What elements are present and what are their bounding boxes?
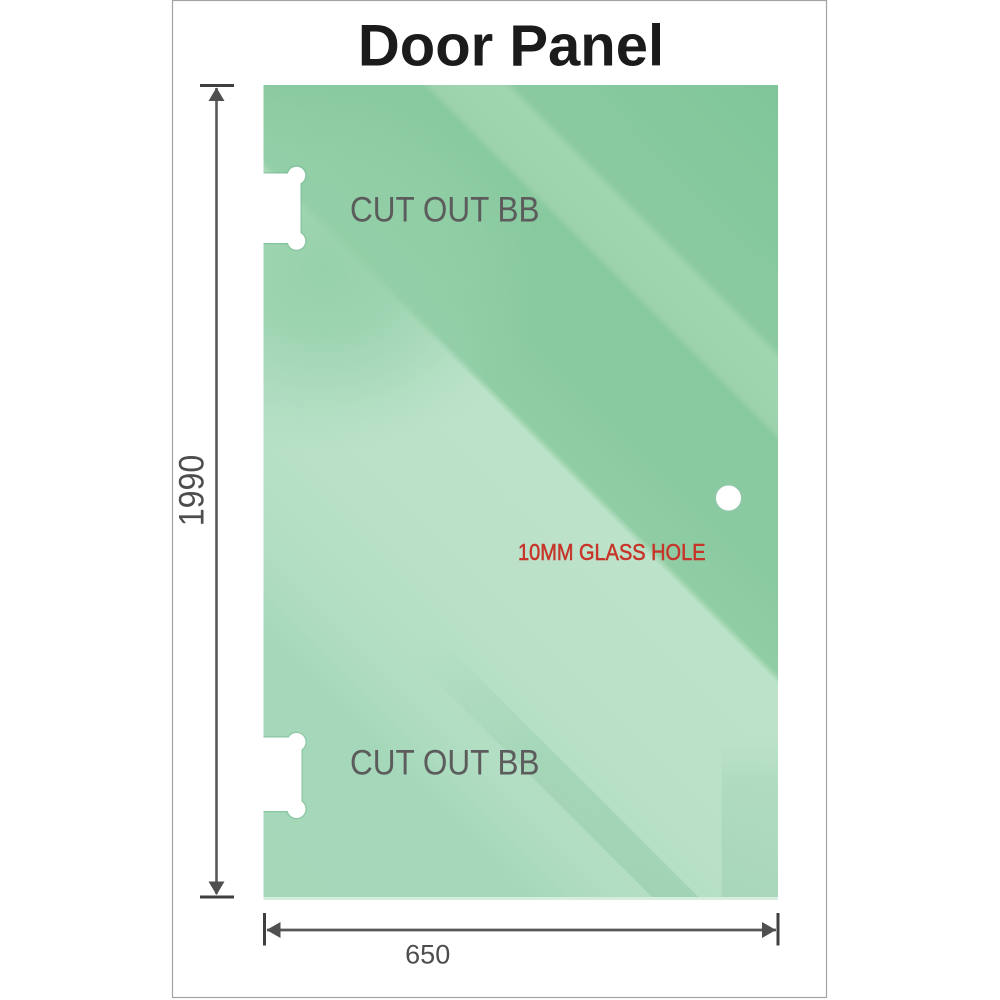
- svg-text:10MM GLASS HOLE: 10MM GLASS HOLE: [518, 538, 706, 565]
- svg-text:Door Panel: Door Panel: [358, 14, 664, 79]
- svg-text:650: 650: [405, 940, 450, 970]
- svg-text:CUT OUT BB: CUT OUT BB: [350, 744, 540, 783]
- svg-text:1990: 1990: [173, 455, 212, 527]
- svg-text:CUT OUT BB: CUT OUT BB: [350, 191, 540, 230]
